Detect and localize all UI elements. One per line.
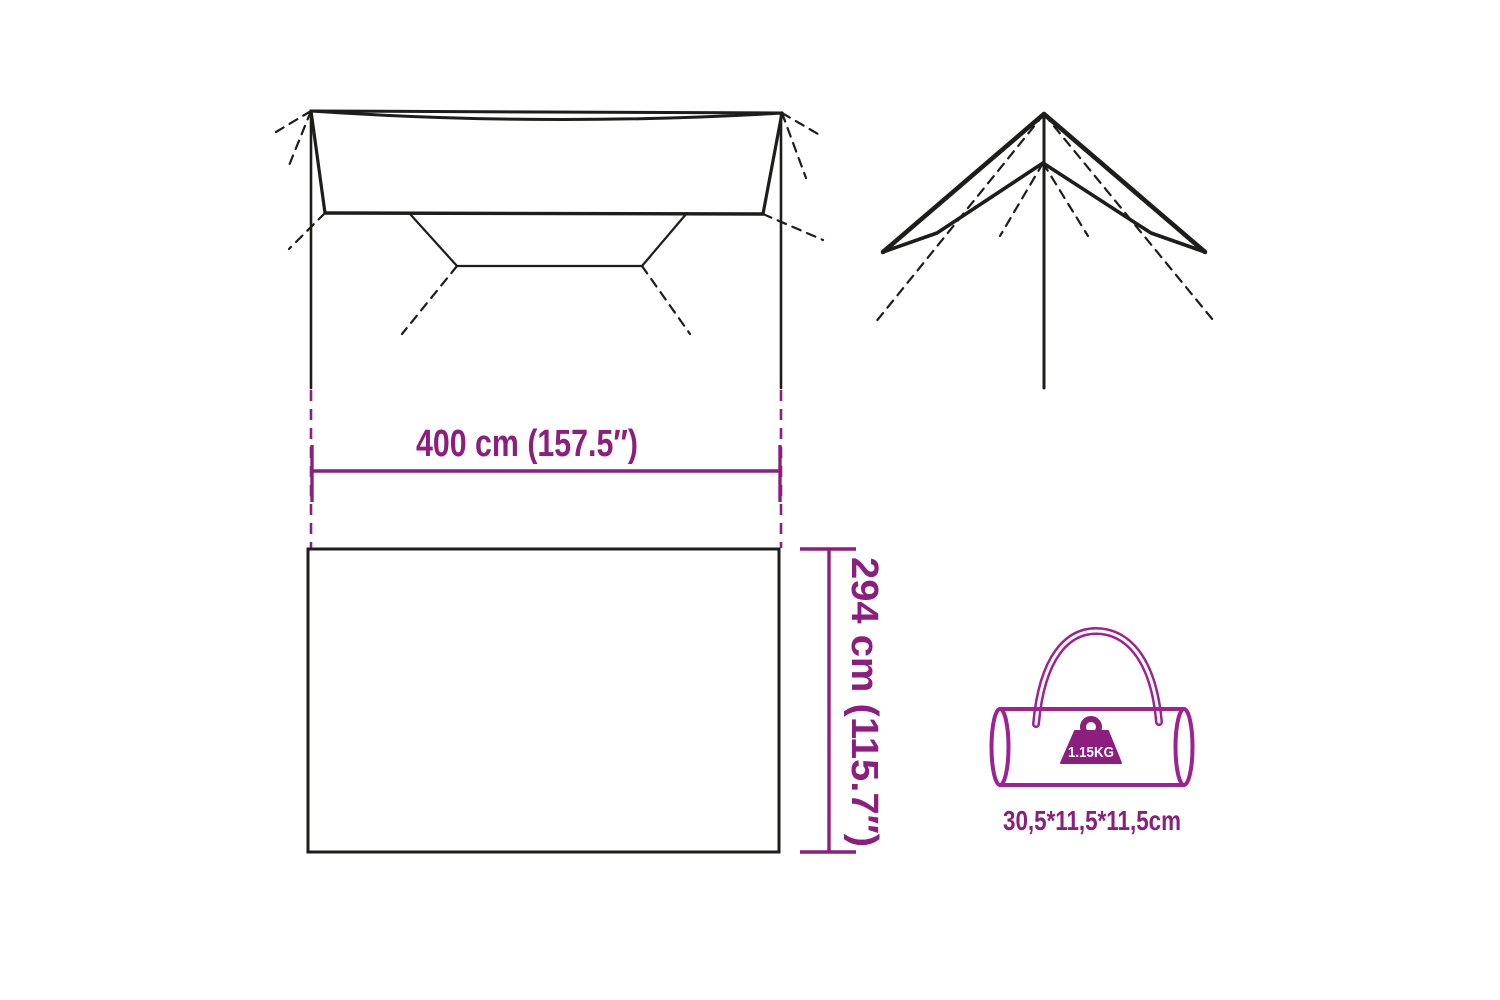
weight-icon: 1.15KG xyxy=(1061,719,1121,763)
tarp-bottom-edge xyxy=(325,213,763,214)
inner-roof-right xyxy=(1043,163,1205,252)
carry-bag-icon: 1.15KG 30,5*11,5*11,5cm xyxy=(992,631,1193,836)
diagram-canvas: 400 cm (157.5″) 294 cm (115.7″) xyxy=(0,0,1500,1000)
height-dimension-label: 294 cm (115.7″) xyxy=(843,557,885,847)
weight-label: 1.15KG xyxy=(1068,745,1114,761)
tarp-back-panel xyxy=(410,213,687,266)
ridge-line xyxy=(311,111,782,113)
width-dimension: 400 cm (157.5″) xyxy=(311,390,781,548)
product-dimension-sheet: 400 cm (157.5″) 294 cm (115.7″) xyxy=(0,0,1500,1000)
outer-roof-right xyxy=(1044,114,1205,252)
tarp-left-edge xyxy=(311,111,325,213)
height-dimension: 294 cm (115.7″) xyxy=(800,549,885,852)
bag-size-label: 30,5*11,5*11,5cm xyxy=(1003,805,1181,836)
bag-right-cap xyxy=(1176,709,1193,785)
width-dimension-label: 400 cm (157.5″) xyxy=(416,423,638,465)
tarp-right-edge xyxy=(763,113,782,214)
footprint-rectangle xyxy=(308,549,779,852)
inner-roof-left xyxy=(883,163,1043,252)
tarp-top-view-diagram xyxy=(276,111,823,388)
bag-left-cap xyxy=(992,709,1009,785)
outer-roof-left xyxy=(883,114,1044,252)
guy-ropes-dashed xyxy=(276,111,823,334)
tarp-pitched-view-diagram xyxy=(875,114,1213,388)
